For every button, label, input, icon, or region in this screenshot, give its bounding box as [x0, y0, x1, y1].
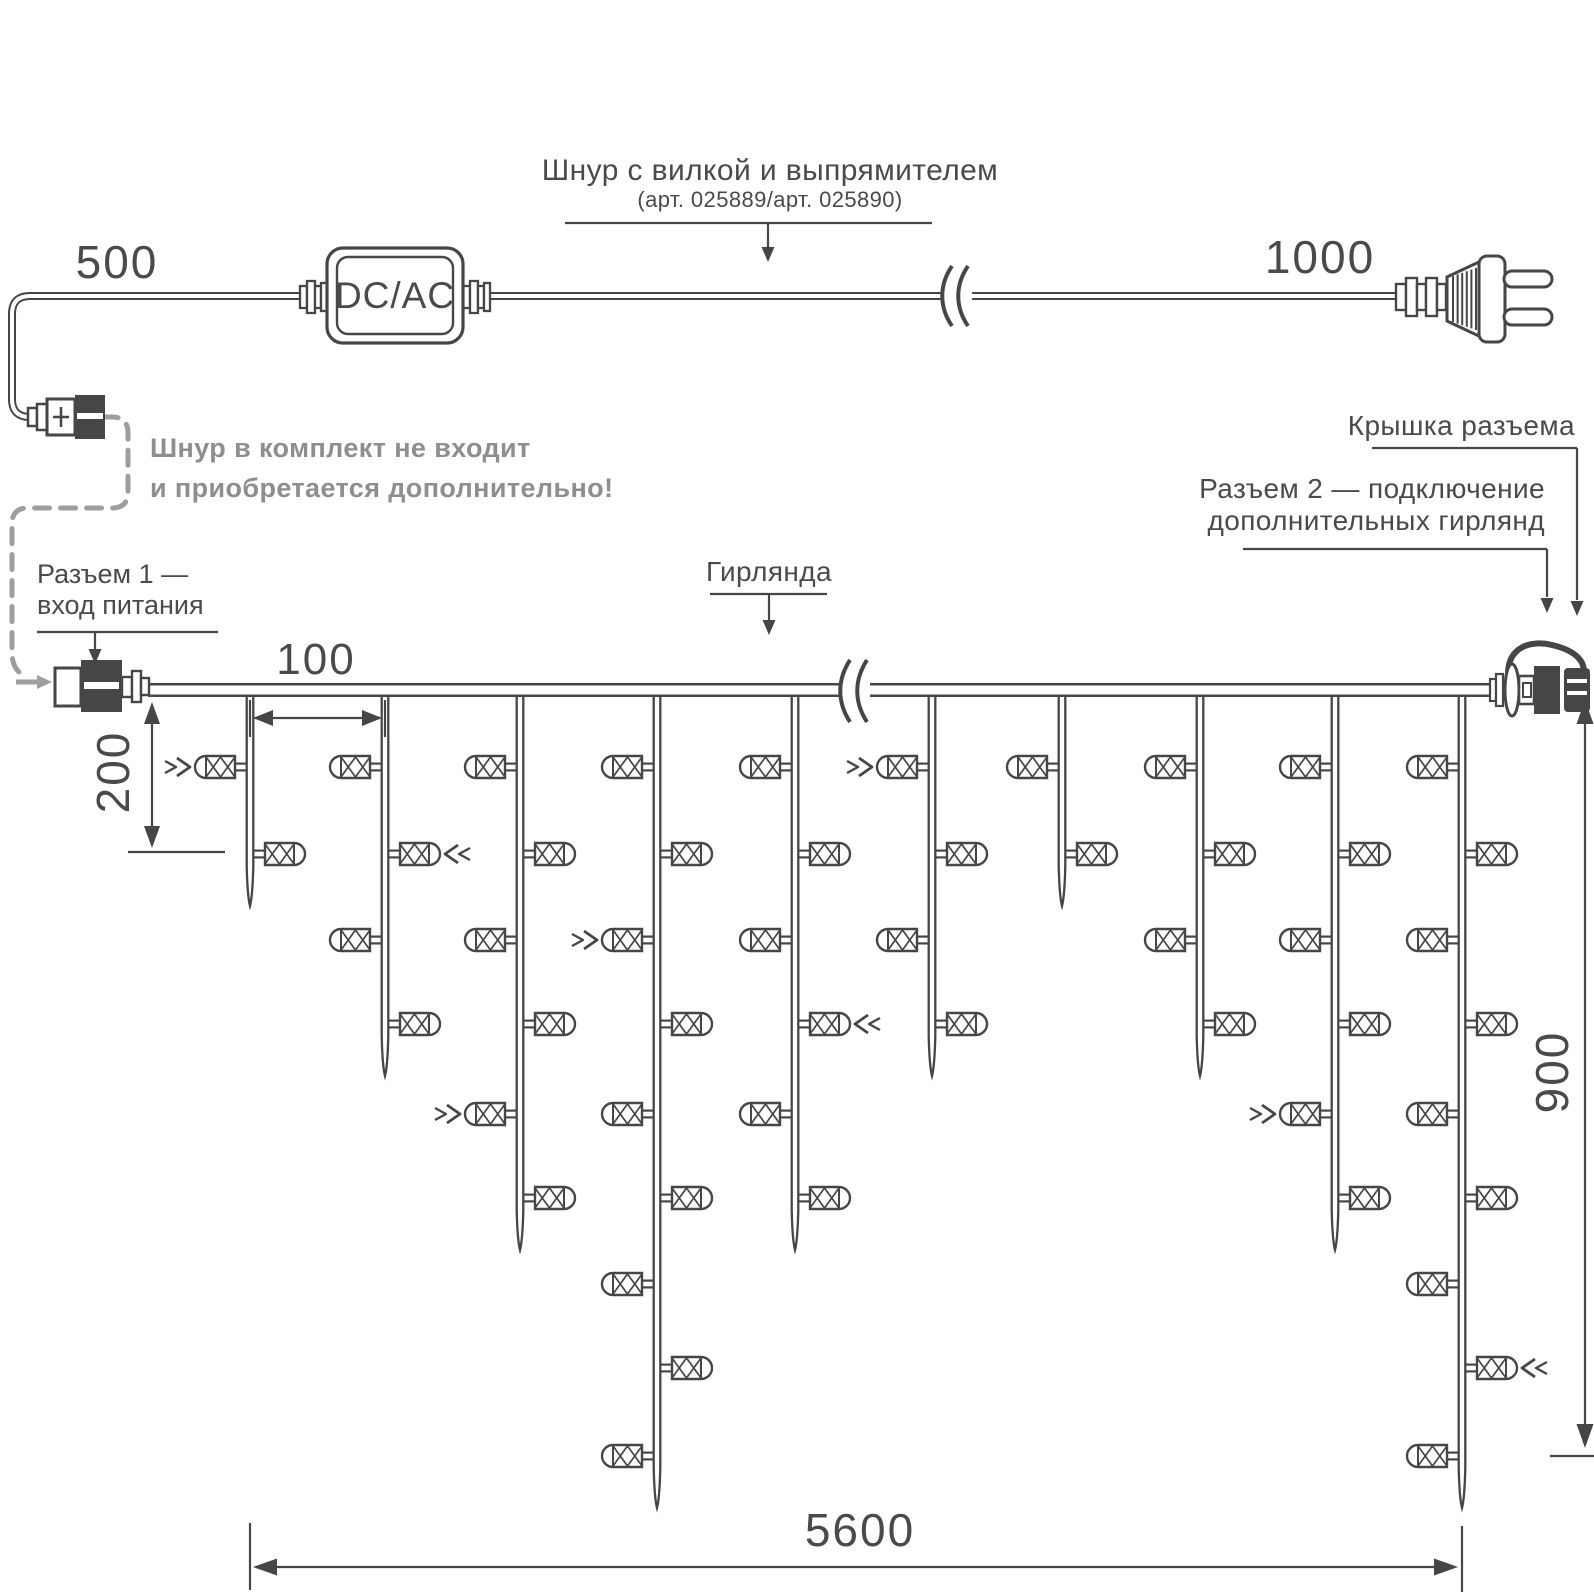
flash-rays-icon	[855, 1015, 880, 1033]
garland-drop-8	[1145, 696, 1255, 1076]
garland-drop-3	[435, 696, 575, 1250]
led-bulb-icon	[1065, 843, 1117, 865]
led-bulb-icon	[602, 1103, 654, 1125]
led-bulb-icon	[1338, 1013, 1390, 1035]
flash-rays-icon	[1522, 1359, 1547, 1377]
led-bulb-icon	[523, 843, 575, 865]
led-bulb-icon	[1407, 756, 1459, 778]
led-bulb-icon	[1407, 1103, 1459, 1125]
garland-drop-7	[1007, 696, 1117, 906]
led-bulb-icon	[660, 1013, 712, 1035]
connector2-icon	[1490, 643, 1590, 716]
led-bulb-icon	[1407, 1445, 1459, 1467]
garland-drop-5	[740, 696, 880, 1250]
cord-subtitle: (арт. 025889/арт. 025890)	[470, 188, 1070, 212]
led-bulb-icon	[523, 1013, 575, 1035]
led-bulb-icon	[1203, 1013, 1255, 1035]
garland-drop-9	[1250, 696, 1390, 1250]
dim-label-1000: 1000	[1220, 233, 1420, 283]
garland-label: Гирлянда	[669, 557, 869, 587]
cord-title-leader	[565, 223, 932, 262]
power-cord	[12, 296, 1396, 417]
led-bulb-icon	[1338, 843, 1390, 865]
cord-note-line2: и приобретается дополнительно!	[150, 474, 613, 503]
led-bulb-icon	[660, 843, 712, 865]
led-bulb-icon	[1407, 929, 1459, 951]
led-bulb-icon	[602, 929, 654, 951]
led-bulb-icon	[660, 1187, 712, 1209]
led-bulb-icon	[798, 843, 850, 865]
dim-label-200: 200	[89, 697, 139, 847]
led-bulb-icon	[253, 843, 305, 865]
led-bulb-icon	[1007, 756, 1059, 778]
led-bulb-icon	[602, 756, 654, 778]
led-bulb-icon	[740, 756, 792, 778]
garland-drop-1	[165, 696, 305, 906]
flash-rays-icon	[165, 758, 190, 776]
led-bulb-icon	[602, 1445, 654, 1467]
led-bulb-icon	[1465, 1013, 1517, 1035]
led-bulb-icon	[388, 1013, 440, 1035]
led-bulb-icon	[602, 1273, 654, 1295]
flash-rays-icon	[847, 758, 872, 776]
connector1-label-line1: Разъем 1 —	[37, 560, 188, 589]
garland-installation-diagram: DC/AC Шнур с вилкой и выпрямителем (арт.…	[0, 0, 1594, 1594]
converter-icon: DC/AC	[300, 248, 490, 343]
garland-break-icon	[840, 660, 870, 722]
led-bulb-icon	[877, 929, 929, 951]
flash-rays-icon	[445, 845, 470, 863]
led-bulb-icon	[1465, 1357, 1517, 1379]
dim-label-100: 100	[256, 636, 376, 684]
led-bulb-icon	[798, 1013, 850, 1035]
led-bulb-icon	[1280, 929, 1332, 951]
led-bulb-icon	[388, 843, 440, 865]
led-bulb-icon	[523, 1187, 575, 1209]
garland-drop-2	[330, 696, 470, 1076]
led-bulb-icon	[1465, 843, 1517, 865]
led-bulb-icon	[740, 929, 792, 951]
dim-label-900: 900	[1528, 992, 1578, 1152]
connector2-label-line2: дополнительных гирлянд	[1140, 506, 1545, 536]
led-bulb-icon	[877, 756, 929, 778]
cord-title: Шнур с вилкой и выпрямителем	[470, 155, 1070, 187]
led-bulb-icon	[1203, 843, 1255, 865]
garland-drop-4	[572, 696, 712, 1508]
connector2-label-line1: Разъем 2 — подключение	[1140, 474, 1545, 504]
led-bulb-icon	[1465, 1187, 1517, 1209]
led-bulb-icon	[465, 1103, 517, 1125]
cap-label: Крышка разъема	[1270, 411, 1575, 441]
led-bulb-icon	[740, 1103, 792, 1125]
led-bulb-icon	[1338, 1187, 1390, 1209]
led-bulb-icon	[1280, 756, 1332, 778]
led-bulb-icon	[660, 1357, 712, 1379]
cord-break-icon	[942, 266, 971, 326]
garland-drop-6	[847, 696, 987, 1076]
led-bulb-icon	[1145, 929, 1197, 951]
connector1-label-line2: вход питания	[37, 591, 204, 620]
dim-100	[250, 700, 385, 737]
garland-label-leader	[710, 594, 827, 635]
led-bulb-icon	[935, 843, 987, 865]
dim-label-5600: 5600	[760, 1506, 960, 1556]
not-included-dashed-cord	[12, 417, 128, 689]
led-bulb-icon	[465, 756, 517, 778]
flash-rays-icon	[1250, 1105, 1275, 1123]
dim-label-500: 500	[57, 238, 177, 288]
led-bulb-icon	[1407, 1273, 1459, 1295]
led-bulb-icon	[1145, 756, 1197, 778]
converter-label: DC/AC	[335, 275, 455, 316]
led-bulb-icon	[195, 756, 247, 778]
led-bulb-icon	[465, 929, 517, 951]
cord-connector-icon	[28, 395, 105, 439]
flash-rays-icon	[435, 1105, 460, 1123]
led-bulb-icon	[798, 1187, 850, 1209]
led-bulb-icon	[330, 929, 382, 951]
cord-note-line1: Шнур в комплект не входит	[150, 434, 531, 463]
led-bulb-icon	[330, 756, 382, 778]
flash-rays-icon	[572, 931, 597, 949]
connector1-leader	[37, 632, 218, 664]
led-bulb-icon	[935, 1013, 987, 1035]
connector2-label-leader	[1243, 549, 1554, 613]
led-bulb-icon	[1280, 1103, 1332, 1125]
